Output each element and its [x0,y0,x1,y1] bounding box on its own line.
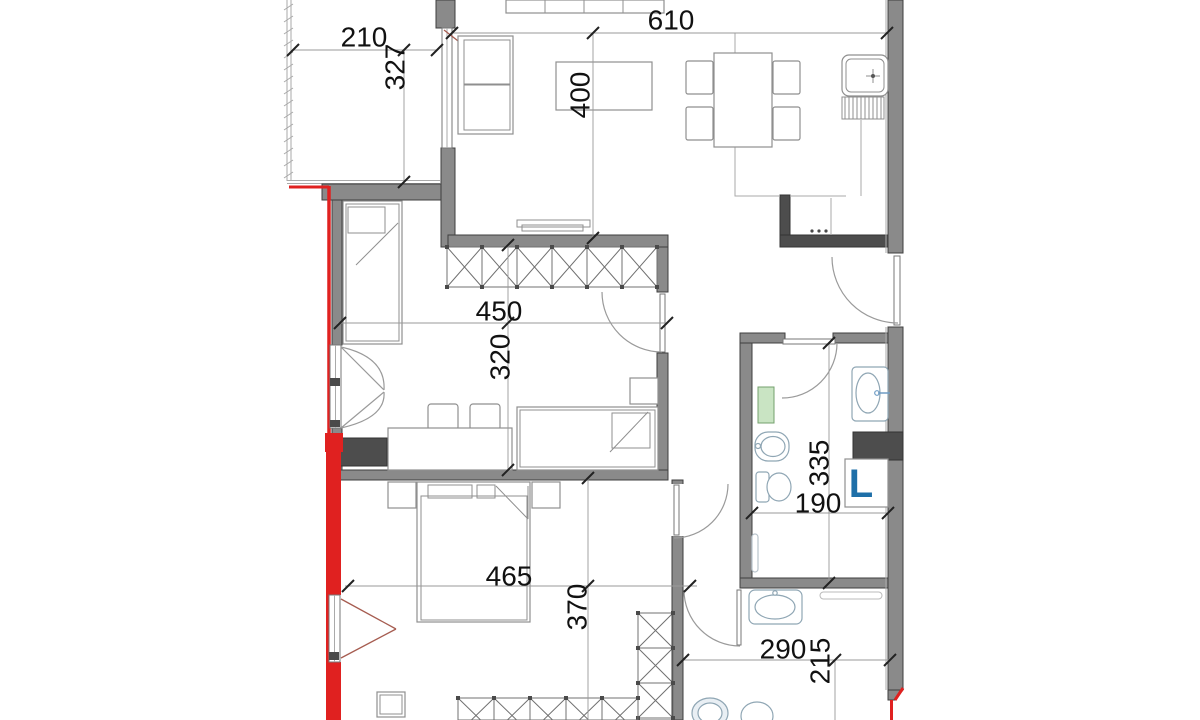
bedroom1-window-hinge-1 [330,378,340,386]
dining-chair-4 [773,107,800,140]
dining-table [714,53,772,147]
dim-label-bedroom2-depth: 370 [562,584,593,631]
kitchen-dot-3 [824,229,827,232]
wall-bathroom1-top-right [833,333,893,343]
bidet-icon [755,432,789,461]
radiator-icon [758,387,774,423]
dim-label-bedroom2-width: 465 [486,561,533,592]
armchair-icon [458,36,513,134]
bedroom2-window-swing [341,599,396,658]
red-wall-bedroom2-upper [326,452,341,595]
wardrobe-bottom-icon [456,696,640,720]
bathroom2-door-leaf [737,590,741,645]
bedroom2-furniture [377,482,675,720]
desk-chair-2 [470,404,500,430]
dim-label-living-depth: 400 [565,72,596,119]
wall-bathroom1-top-left [740,333,785,343]
dim-label-bathroom1-depth: 335 [804,440,835,487]
nightstand-bedroom2-left-icon [388,482,416,508]
bedroom1-window [330,345,384,428]
shower-glass-icon [752,534,758,572]
entrance-door-arc [832,257,898,323]
balcony-railing-ticks [284,4,293,178]
sink-drain [871,74,875,78]
kitchen-dot-1 [810,229,813,232]
red-wall-bedroom2-lower [326,662,341,720]
wall-right-top [888,0,903,253]
toilet-bathroom2-icon [692,698,728,720]
balcony-edge-bottom [287,181,440,184]
dim-label-bathroom1-width: 190 [795,488,842,519]
dining-chair-2 [686,107,713,140]
wardrobe-vertical-icon [636,611,675,720]
dining-chair-1 [686,61,713,94]
bedroom1-window-casement-arcs [341,347,384,428]
floor-plan-page: L 210 327 610 [0,0,1200,720]
bathroom2-door-arc [684,590,740,646]
entrance-door [832,256,900,325]
wall-right-bottom [888,327,903,690]
shelf-icon [820,592,882,599]
nightstand-bedroom2-right-icon [532,482,560,508]
toilet-bathroom1-icon [756,472,791,502]
desk-icon [388,404,512,470]
floor-plan-drawing: L 210 327 610 [0,0,1200,720]
wall-living-left-bottom [441,148,455,247]
bidet-bathroom2-icon [741,702,773,720]
kitchen-sink-icon [842,55,888,119]
kitchen-dot-2 [817,229,820,232]
dining-chair-3 [773,61,800,94]
bedroom1-door [602,292,665,352]
desk-chair-1 [428,404,458,430]
bed-single-2-icon [517,407,658,470]
bathroom1-door-leaf [783,339,835,344]
washbasin-bathroom2-icon [749,590,802,624]
dim-label-bedroom1-width: 450 [476,296,523,327]
pier-bathroom1-right [853,432,903,460]
closet-icon [445,245,659,289]
wall-bedroom1-right-lower [657,353,668,480]
desk-top [388,428,512,470]
wall-living-left-top [436,0,455,28]
washing-machine-icon: L [845,459,888,507]
kitchen-nook-lines [790,196,846,235]
sofa-icon [506,0,664,13]
bedroom2-window [329,595,396,662]
red-block-left [325,433,343,452]
sink-drainboard [842,97,884,119]
nightstand-bedroom1-icon [630,378,658,404]
bedroom1-door-arc [602,292,662,352]
dim-label-bedroom1-depth: 320 [485,334,516,381]
wall-bathroom1-left [740,333,752,588]
dim-label-bathroom2-width: 290 [760,634,807,665]
sink-outer [842,55,888,96]
wall-bathrooms-divider [740,578,893,588]
bed-double-icon [417,482,530,622]
pier-bedroom-divider [336,438,387,466]
wall-kitchen-peninsula-horiz [780,235,888,247]
bedroom2-window-hinge [329,652,339,660]
dim-label-balcony-depth: 327 [380,44,411,91]
bathroom2-door [684,590,741,646]
dim-label-bathroom2-depth: 215 [805,638,836,685]
bedroom1-window-hinge-2 [330,420,340,427]
washing-machine-label: L [849,462,873,506]
bedroom2-door-leaf [674,485,679,535]
entrance-door-leaf [894,256,900,325]
wall-bedroom1-topleft [322,184,453,200]
stool-bedroom2-icon [377,692,405,717]
washbasin-bathroom1-icon [852,367,890,421]
dim-ticks [287,27,896,666]
dim-label-living-width: 610 [648,5,695,36]
dining-set-icon [686,53,800,147]
tv-board-icon [517,220,590,231]
